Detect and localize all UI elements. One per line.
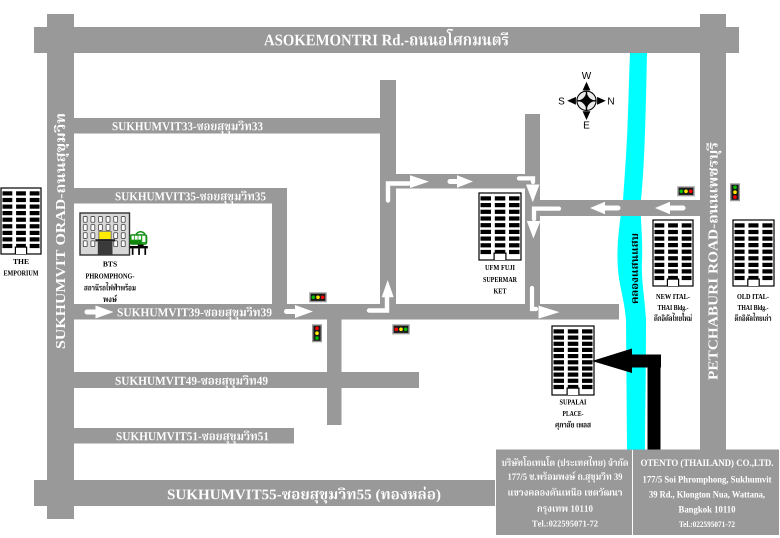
svg-text:NEW ITAL-: NEW ITAL- [656, 292, 690, 301]
svg-text:PLACE-: PLACE- [563, 409, 584, 418]
svg-text:OLD ITAL-: OLD ITAL- [737, 292, 769, 301]
svg-text:39 Rd., Klongton Nua, Wattana,: 39 Rd., Klongton Nua, Wattana, [649, 490, 766, 501]
svg-text:Bangkok 10110: Bangkok 10110 [679, 505, 736, 516]
svg-text:THAI Bldg.-: THAI Bldg.- [658, 303, 689, 312]
svg-text:THE: THE [13, 257, 29, 266]
svg-text:N: N [607, 96, 614, 107]
svg-text:SUPERMAR: SUPERMAR [483, 275, 517, 284]
svg-text:Tel.:022595071-72: Tel.:022595071-72 [679, 520, 735, 529]
svg-text:177/5 Soi Phromphong, Sukhumvi: 177/5 Soi Phromphong, Sukhumvit [643, 474, 773, 485]
svg-text:KET: KET [494, 287, 507, 296]
svg-text:SUPALAI: SUPALAI [560, 398, 587, 407]
svg-text:E: E [583, 120, 590, 131]
svg-text:PHROMPHONG-: PHROMPHONG- [86, 272, 135, 281]
svg-text:OTENTO (THAILAND) CO.,LTD.: OTENTO (THAILAND) CO.,LTD. [641, 458, 774, 469]
svg-text:EMPORIUM: EMPORIUM [4, 269, 39, 278]
svg-text:UFM FUJI: UFM FUJI [485, 263, 515, 272]
svg-text:BTS: BTS [103, 260, 117, 269]
svg-text:W: W [582, 71, 592, 82]
svg-text:THAI Bldg.-: THAI Bldg.- [738, 303, 769, 312]
svg-text:S: S [558, 96, 565, 107]
